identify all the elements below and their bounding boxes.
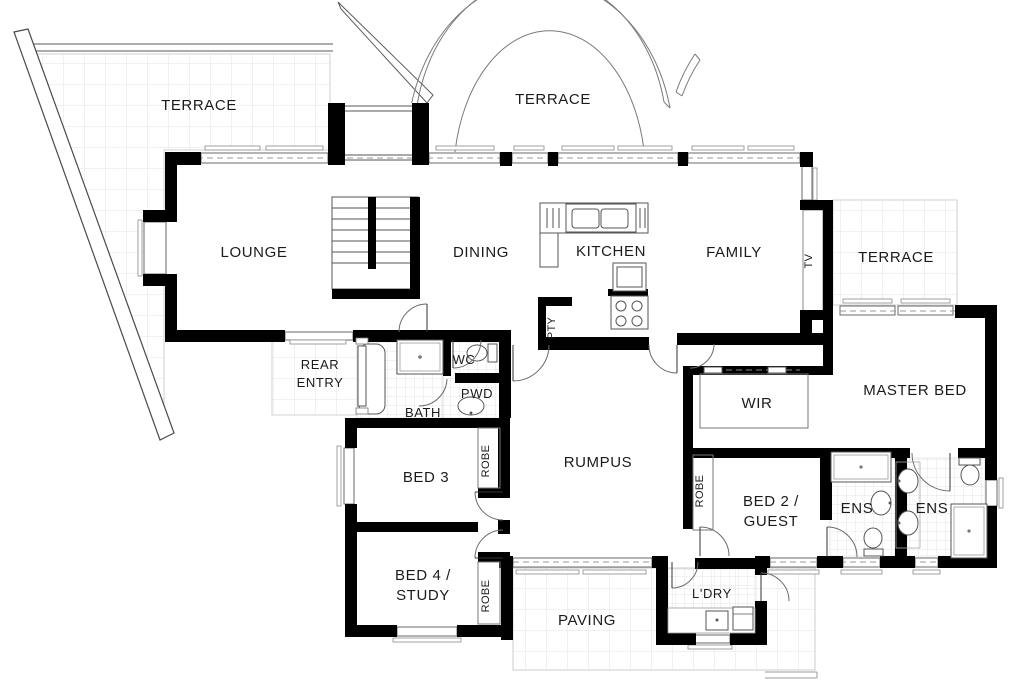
room-label-ens-left: ENS: [841, 500, 874, 517]
room-label-master: MASTER BED: [863, 382, 967, 399]
floor-plan-svg: TERRACE TERRACE TERRACE LOUNGE DINING KI…: [0, 0, 1024, 683]
laundry-bench: [668, 607, 755, 633]
room-label-bed2-robe: ROBE: [694, 475, 706, 508]
room-label-pwd: PWD: [461, 386, 493, 401]
stove-icon: [611, 296, 648, 329]
room-label-paving: PAVING: [558, 612, 616, 629]
room-label-tv: TV: [803, 253, 815, 268]
room-label-bed4-2: STUDY: [396, 587, 450, 604]
laundry-trough-icon: [733, 607, 753, 630]
room-label-wir: WIR: [742, 395, 773, 412]
ens-left-basin-icon: [871, 491, 892, 515]
room-label-bed3: BED 3: [403, 469, 449, 486]
room-label-terrace-nw: TERRACE: [161, 97, 237, 114]
room-label-lounge: LOUNGE: [221, 244, 288, 261]
room-label-rumpus: RUMPUS: [564, 454, 633, 471]
room-label-bath: BATH: [405, 405, 441, 420]
room-label-terrace-e: TERRACE: [858, 249, 934, 266]
stairs: [332, 197, 418, 289]
room-label-wc: WC: [453, 352, 476, 367]
room-label-laundry: L'DRY: [692, 586, 732, 601]
sink-bowl-left-icon: [572, 209, 599, 228]
room-label-bed3-robe: ROBE: [480, 445, 492, 478]
rear-entry-door: [356, 338, 368, 414]
floor-plan: TERRACE TERRACE TERRACE LOUNGE DINING KI…: [0, 0, 1024, 683]
room-label-ens-right: ENS: [916, 500, 949, 517]
room-label-terrace-n: TERRACE: [515, 91, 591, 108]
room-label-bed2-1: BED 2 /: [743, 493, 799, 510]
room-label-rear-entry-1: REAR: [301, 357, 340, 372]
room-label-family: FAMILY: [706, 244, 762, 261]
room-label-bed4-robe: ROBE: [480, 580, 492, 613]
sink-bowl-right-icon: [601, 209, 628, 228]
room-label-bed2-2: GUEST: [744, 513, 799, 530]
room-label-rear-entry-2: ENTRY: [297, 375, 344, 390]
ens-left-toilet-icon: [864, 528, 883, 556]
ens-right-shower-icon: [951, 504, 987, 558]
ens-right-basin1-icon: [898, 469, 918, 493]
fridge-space: [613, 263, 646, 291]
room-label-kitchen: KITCHEN: [576, 243, 646, 260]
room-label-dining: DINING: [453, 244, 509, 261]
room-label-bed4-1: BED 4 /: [395, 567, 451, 584]
bath-shower-icon: [397, 340, 443, 374]
room-label-pantry: PTY: [546, 316, 558, 339]
ens-left-shower-icon: [831, 452, 891, 482]
entry-porch: [345, 103, 412, 165]
